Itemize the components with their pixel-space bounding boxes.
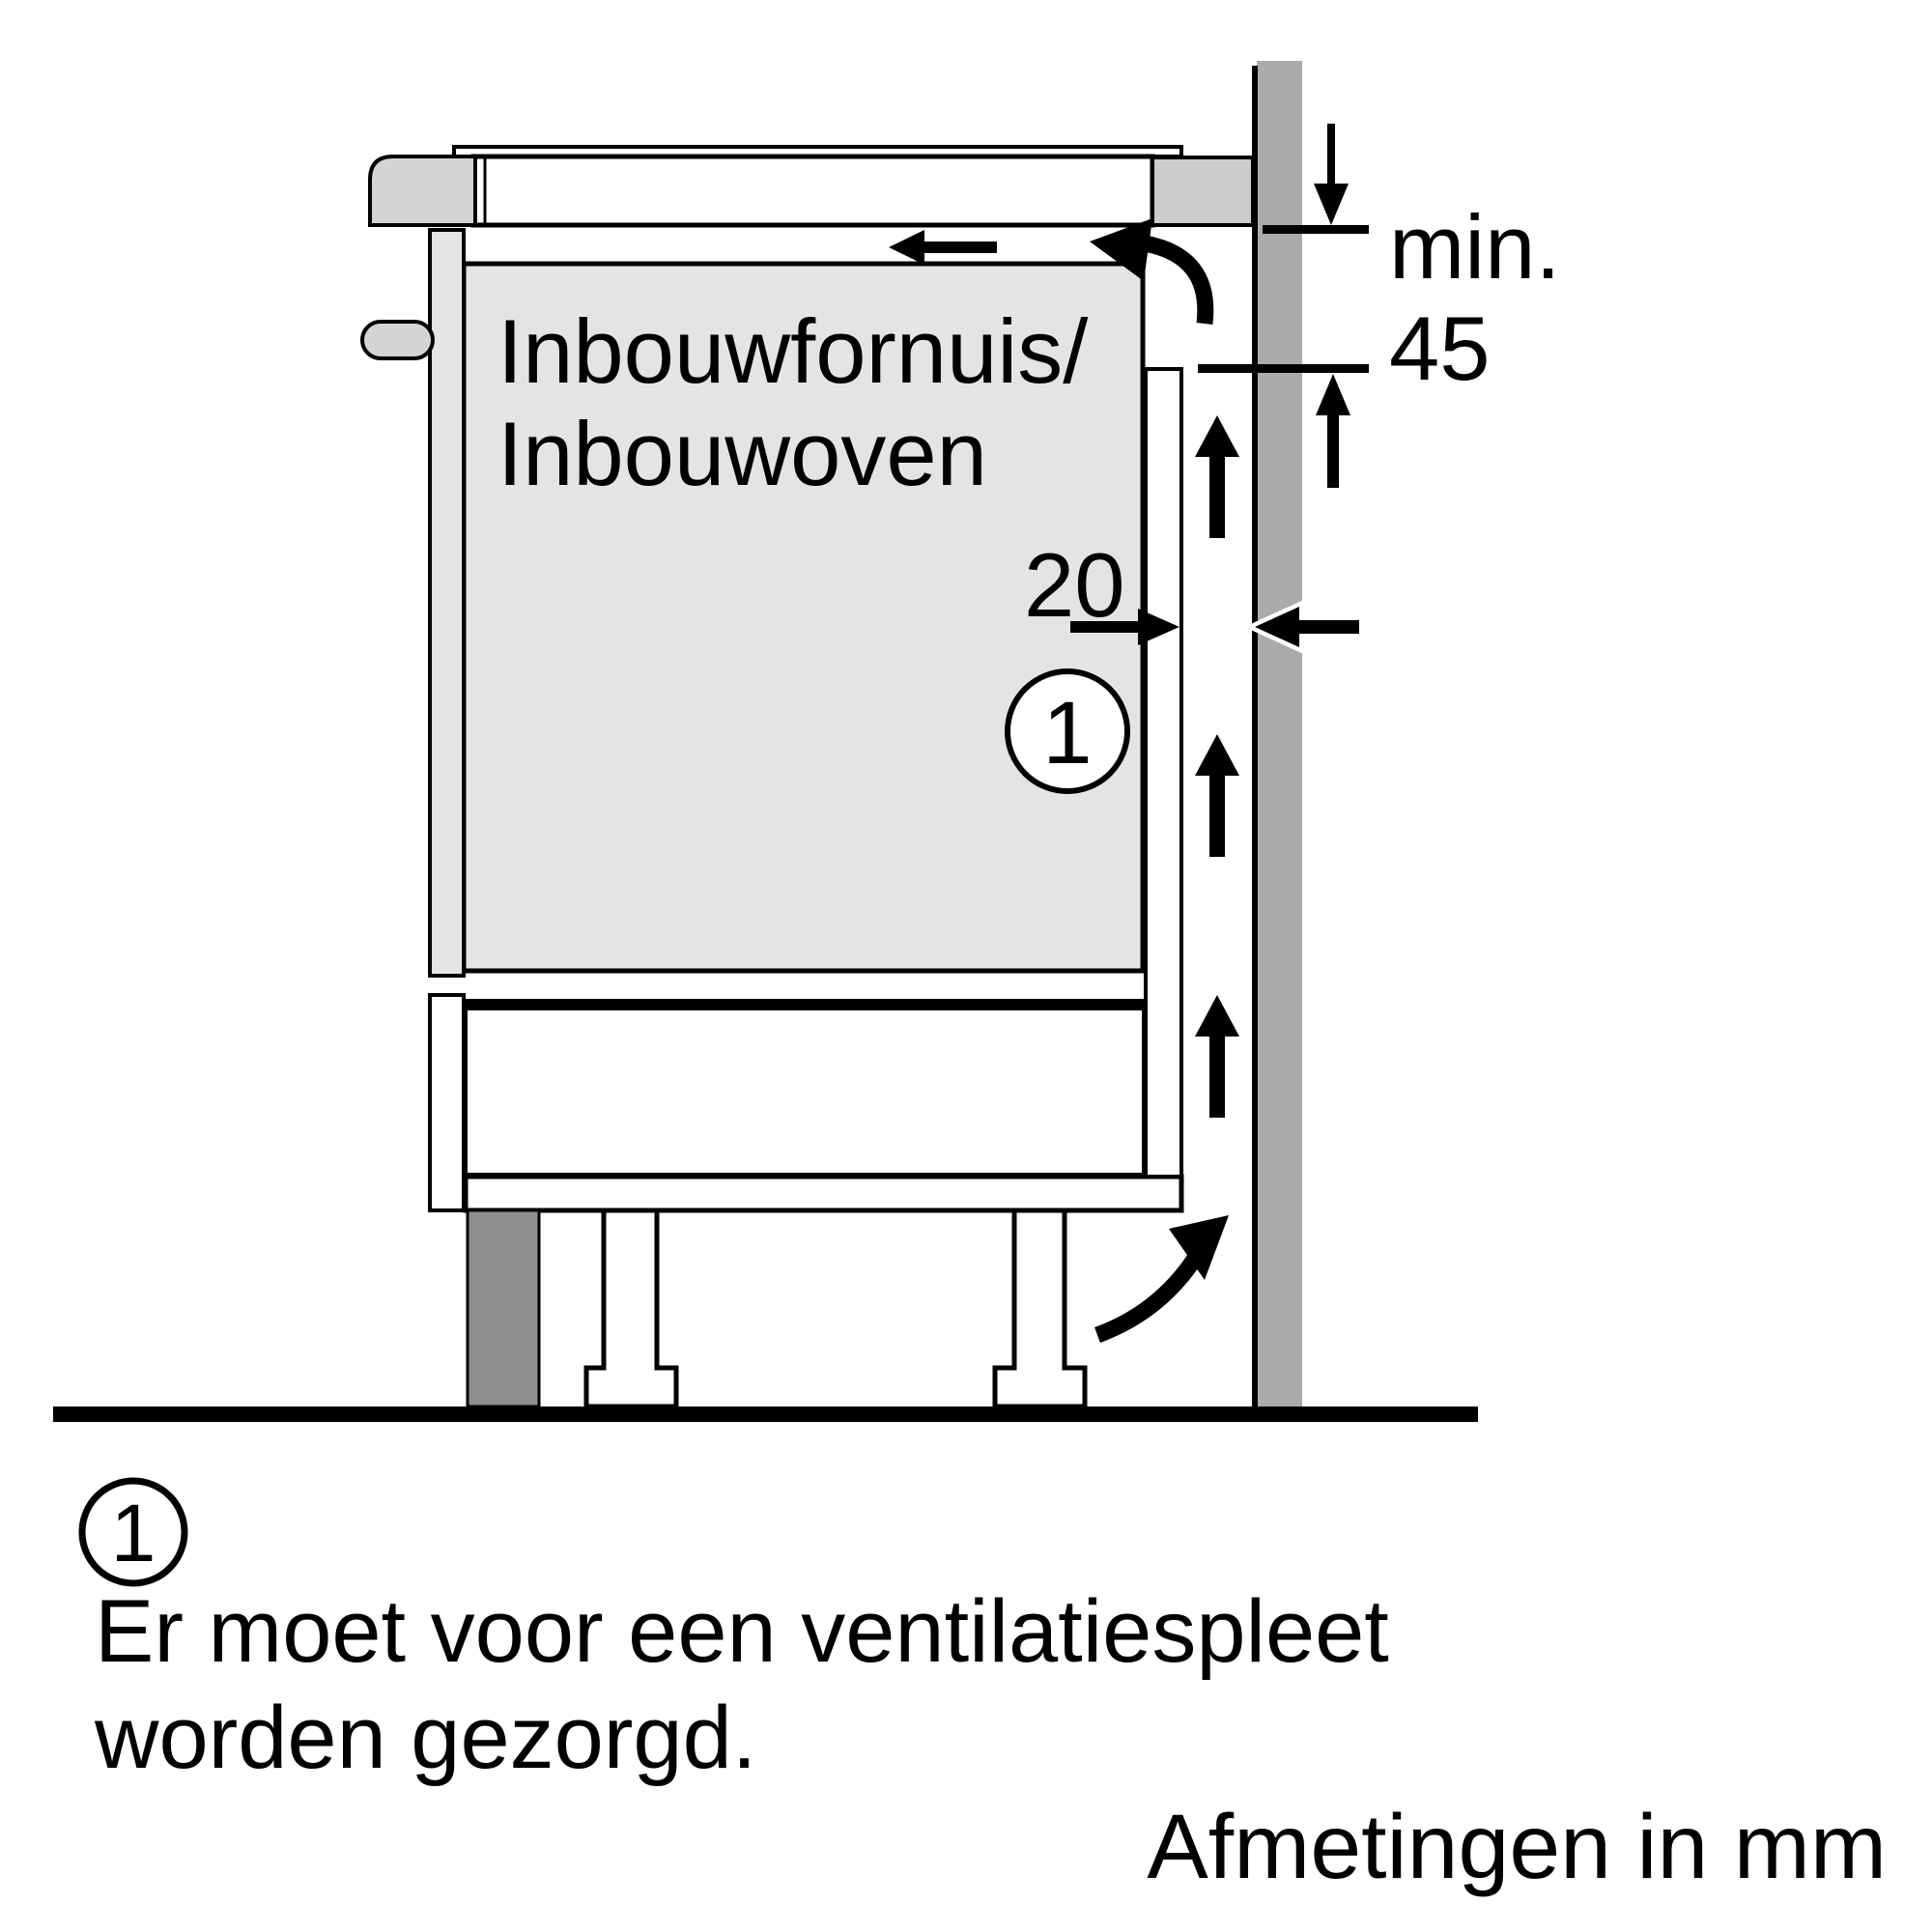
appliance-label-line1: Inbouwfornuis/	[497, 300, 1089, 402]
footnote-line2: worden gezorgd.	[94, 1689, 756, 1787]
units-note: Afmetingen in mm	[1147, 1796, 1887, 1898]
worktop-back-block	[1152, 157, 1253, 225]
lower-compartment	[466, 1009, 1144, 1175]
cabinet: Inbouwfornuis/ Inbouwoven	[362, 230, 1181, 1406]
airflow-left-arrow	[889, 230, 997, 265]
wall-surface	[1257, 61, 1302, 1407]
lower-door-front	[430, 995, 464, 1210]
airflow-curved-arrow-bottom-shaft	[1097, 1254, 1198, 1335]
appliance-door	[430, 230, 464, 976]
min45-tick-lower	[1198, 364, 1369, 373]
callout-1-number: 1	[1042, 684, 1092, 782]
cabinet-back-panel	[1146, 369, 1181, 1177]
floor-line	[53, 1406, 1478, 1422]
footnote: 1 Er moet voor een ventilatiespleet word…	[82, 1481, 1389, 1787]
worktop-band	[473, 156, 1152, 225]
airflow-up-arrow-1	[1195, 415, 1239, 538]
min45-tick-upper	[1263, 225, 1369, 234]
cabinet-leg-left	[586, 1210, 676, 1406]
min45-up-arrow	[1316, 374, 1350, 488]
airflow-up-arrow-2	[1195, 734, 1239, 857]
airflow-up-arrow-3	[1195, 995, 1239, 1118]
airflow-curved-arrow-top-shaft	[1145, 243, 1206, 324]
callout-1: 1	[1008, 671, 1127, 791]
hob-front-edge	[370, 156, 475, 225]
appliance-label-line2: Inbouwoven	[497, 403, 987, 504]
min45-value: 45	[1389, 298, 1491, 399]
wall-edge-line	[1252, 66, 1258, 1407]
cabinet-bottom-board	[466, 1177, 1181, 1210]
footnote-marker-number: 1	[111, 1488, 156, 1578]
footnote-line1: Er moet voor een ventilatiespleet	[95, 1582, 1389, 1681]
plinth-panel	[468, 1210, 539, 1406]
wall	[1252, 61, 1302, 1407]
min45-label: min.	[1389, 196, 1561, 298]
cabinet-leg-right	[995, 1210, 1085, 1406]
gap20-value: 20	[1024, 534, 1125, 636]
dimension-gap20: 20	[1024, 534, 1359, 647]
installation-diagram: Inbouwfornuis/ Inbouwoven min. 45	[0, 0, 1932, 1932]
min45-down-arrow-shaft	[1327, 124, 1335, 185]
worktop-assembly	[370, 147, 1253, 225]
door-handle	[362, 322, 433, 358]
min45-down-arrow-head	[1314, 184, 1349, 225]
